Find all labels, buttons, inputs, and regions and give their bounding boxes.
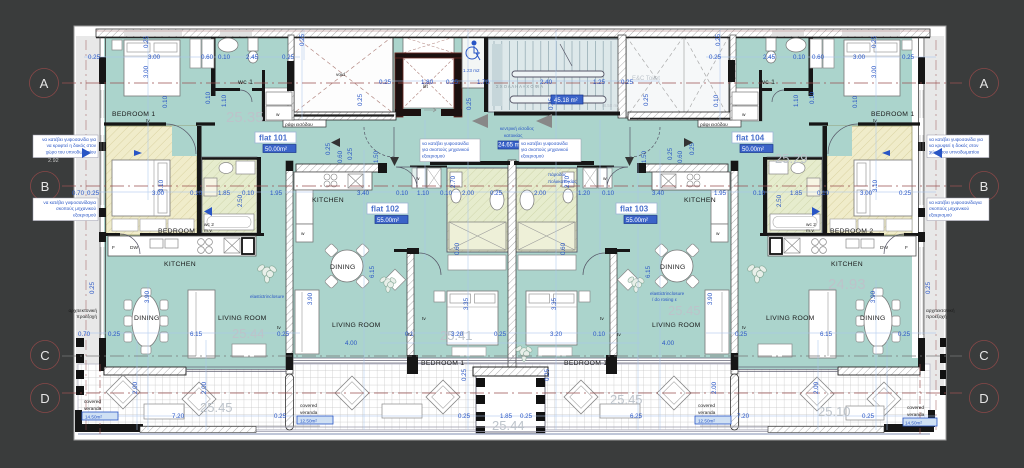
svg-text:DINING: DINING xyxy=(660,264,686,271)
svg-text:w: w xyxy=(603,177,607,182)
svg-text:25.10: 25.10 xyxy=(818,404,851,419)
svg-text:1.80: 1.80 xyxy=(421,79,434,86)
svg-text:να κατέβει γυψοσανίδα για: να κατέβει γυψοσανίδα για xyxy=(929,136,983,142)
svg-text:2.50: 2.50 xyxy=(776,194,783,207)
svg-text:0.25: 0.25 xyxy=(446,79,459,86)
svg-text:3.20: 3.20 xyxy=(451,331,464,338)
svg-text:1.20: 1.20 xyxy=(578,190,591,197)
svg-text:D: D xyxy=(40,391,49,406)
svg-text:1.95: 1.95 xyxy=(270,190,283,197)
svg-text:veranda: veranda xyxy=(698,410,716,416)
svg-text:wc 2: wc 2 xyxy=(204,222,214,228)
svg-text:0.10: 0.10 xyxy=(593,331,606,338)
svg-text:0.60: 0.60 xyxy=(677,150,684,163)
svg-text:LIVING ROOM: LIVING ROOM xyxy=(766,315,815,322)
svg-text:m.v.: m.v. xyxy=(204,229,213,234)
svg-text:0.25: 0.25 xyxy=(643,93,650,106)
svg-text:25.35: 25.35 xyxy=(226,109,264,126)
svg-text:25.44: 25.44 xyxy=(492,418,525,433)
svg-text:12.50m²: 12.50m² xyxy=(698,419,715,424)
svg-text:3.90: 3.90 xyxy=(144,290,151,303)
svg-text:1.23 m2: 1.23 m2 xyxy=(463,68,480,73)
svg-text:0.25: 0.25 xyxy=(709,54,722,61)
svg-text:tv: tv xyxy=(873,118,877,124)
svg-text:0.60: 0.60 xyxy=(812,54,825,61)
svg-text:αρχιτεκτονική: αρχιτεκτονική xyxy=(68,307,97,314)
svg-text:/ do rosing ε: / do rosing ε xyxy=(652,297,677,302)
svg-text:3.10: 3.10 xyxy=(158,179,165,192)
svg-text:0.25: 0.25 xyxy=(325,142,332,155)
svg-text:να κατέβει γυψοσανίδα: να κατέβει γυψοσανίδα xyxy=(521,140,568,146)
svg-text:F: F xyxy=(905,245,908,251)
svg-text:3.35: 3.35 xyxy=(551,297,558,310)
svg-text:C: C xyxy=(40,348,49,363)
svg-text:w: w xyxy=(742,113,746,118)
svg-text:6.15: 6.15 xyxy=(369,265,376,278)
svg-text:0.60: 0.60 xyxy=(560,242,567,255)
svg-text:0.25: 0.25 xyxy=(871,35,878,48)
svg-text:2.00: 2.00 xyxy=(132,381,139,394)
svg-text:0.25: 0.25 xyxy=(461,368,468,381)
svg-text:σκοπούς μηχανικού: σκοπούς μηχανικού xyxy=(56,205,96,211)
svg-text:B: B xyxy=(41,179,50,194)
svg-text:0.25: 0.25 xyxy=(862,413,875,420)
svg-text:προεξοχή: προεξοχή xyxy=(76,313,97,320)
svg-text:1.50: 1.50 xyxy=(641,150,648,163)
svg-text:wc 1: wc 1 xyxy=(759,79,775,86)
svg-text:1.95: 1.95 xyxy=(714,190,727,197)
svg-text:w: w xyxy=(276,113,280,118)
svg-text:covered: covered xyxy=(84,399,101,405)
svg-text:24.65 m²: 24.65 m² xyxy=(498,143,522,149)
svg-text:3.90: 3.90 xyxy=(707,292,714,305)
svg-text:0.25: 0.25 xyxy=(299,33,306,46)
svg-text:7.20: 7.20 xyxy=(737,413,750,420)
svg-text:w: w xyxy=(301,232,305,237)
svg-text:0.25: 0.25 xyxy=(108,331,121,338)
svg-text:0.25: 0.25 xyxy=(87,190,100,197)
svg-text:BEDROOM 1: BEDROOM 1 xyxy=(871,111,915,118)
svg-text:για σκοπούς μηχανικού: για σκοπούς μηχανικού xyxy=(521,146,569,152)
svg-text:25.29: 25.29 xyxy=(775,151,808,166)
svg-text:0.10: 0.10 xyxy=(218,54,231,61)
svg-text:2.70: 2.70 xyxy=(450,175,457,188)
svg-text:covered: covered xyxy=(907,405,924,411)
svg-text:E&C Toilet: E&C Toilet xyxy=(632,76,660,82)
svg-text:(8.58 m): (8.58 m) xyxy=(602,103,619,108)
svg-text:0.25: 0.25 xyxy=(735,331,748,338)
svg-text:0.25: 0.25 xyxy=(667,147,674,160)
svg-text:0.10: 0.10 xyxy=(713,94,720,107)
svg-text:covered: covered xyxy=(300,403,317,409)
svg-text:0.70: 0.70 xyxy=(72,190,85,197)
svg-text:0.25: 0.25 xyxy=(88,54,101,61)
svg-text:0.25: 0.25 xyxy=(379,79,392,86)
svg-text:0.25: 0.25 xyxy=(925,281,932,294)
svg-text:εξαερισμού: εξαερισμού xyxy=(929,211,952,218)
svg-text:6.15: 6.15 xyxy=(645,265,652,278)
svg-text:0.25: 0.25 xyxy=(282,54,295,61)
svg-text:50.00m²: 50.00m² xyxy=(742,147,764,153)
svg-text:A: A xyxy=(980,76,989,91)
svg-text:w: w xyxy=(716,232,720,237)
svg-text:55.00m²: 55.00m² xyxy=(377,218,399,224)
svg-text:3.20: 3.20 xyxy=(550,331,563,338)
svg-text:wc 1: wc 1 xyxy=(237,79,253,86)
svg-text:0.25: 0.25 xyxy=(899,190,912,197)
svg-text:1.85: 1.85 xyxy=(218,190,231,197)
svg-text:BEDROOM 1: BEDROOM 1 xyxy=(421,360,465,367)
svg-text:6.15: 6.15 xyxy=(190,331,203,338)
svg-text:tv: tv xyxy=(408,332,412,338)
svg-text:εξαερισμού: εξαερισμού xyxy=(422,152,445,159)
svg-text:να κρυφτεί η δοκός στον: να κρυφτεί η δοκός στον xyxy=(47,142,97,148)
svg-text:veranda: veranda xyxy=(907,412,925,418)
svg-text:3.90: 3.90 xyxy=(870,290,877,303)
svg-text:0.25: 0.25 xyxy=(277,331,290,338)
svg-text:να κατέβει γυψοσανίδα για: να κατέβει γυψοσανίδα για xyxy=(42,136,96,142)
svg-text:0.10: 0.10 xyxy=(809,91,816,104)
svg-text:0.25: 0.25 xyxy=(490,190,503,197)
svg-text:25.45: 25.45 xyxy=(668,303,701,318)
svg-text:6.25: 6.25 xyxy=(630,413,643,420)
svg-text:0.60: 0.60 xyxy=(454,242,461,255)
svg-text:LIVING ROOM: LIVING ROOM xyxy=(652,322,701,329)
svg-text:flat 101: flat 101 xyxy=(259,134,288,143)
svg-text:25.44: 25.44 xyxy=(232,326,265,341)
svg-text:3.35: 3.35 xyxy=(463,297,470,310)
svg-text:Σ Χ Ο Α Λ Η Α × Χ Ο ΦΙ Α: Σ Χ Ο Α Λ Η Α × Χ Ο ΦΙ Α xyxy=(496,84,543,89)
svg-text:3.10: 3.10 xyxy=(872,179,879,192)
svg-text:1.25: 1.25 xyxy=(593,79,606,86)
svg-text:να κατέβει γυψοσανίδαγια: να κατέβει γυψοσανίδαγια xyxy=(929,199,982,205)
svg-text:DINING: DINING xyxy=(860,315,886,322)
svg-text:0.60: 0.60 xyxy=(337,150,344,163)
svg-text:2.00: 2.00 xyxy=(711,381,718,394)
svg-text:να κατέβει γυψοσανίδαγια: να κατέβει γυψοσανίδαγια xyxy=(43,199,96,205)
svg-text:BEDROOM 2: BEDROOM 2 xyxy=(158,228,202,235)
svg-text:3.00: 3.00 xyxy=(853,54,866,61)
svg-text:0.25: 0.25 xyxy=(494,331,507,338)
svg-text:6.15: 6.15 xyxy=(820,331,833,338)
svg-text:2.40: 2.40 xyxy=(540,79,553,86)
svg-text:1.50: 1.50 xyxy=(373,150,380,163)
svg-text:να κατέβει γυψοσανίδα: να κατέβει γυψοσανίδα xyxy=(422,140,469,146)
svg-text:12.50m²: 12.50m² xyxy=(300,419,317,424)
svg-text:25.45: 25.45 xyxy=(200,400,233,415)
svg-text:14.50m²: 14.50m² xyxy=(905,421,922,426)
svg-text:εξαερισμού: εξαερισμού xyxy=(73,211,96,218)
svg-text:25.45: 25.45 xyxy=(610,392,643,407)
svg-text:2.50: 2.50 xyxy=(237,194,244,207)
svg-text:DW: DW xyxy=(130,245,138,251)
svg-text:3.00: 3.00 xyxy=(148,54,161,61)
svg-text:0.10: 0.10 xyxy=(753,190,766,197)
svg-text:tv: tv xyxy=(422,316,426,322)
svg-text:flat 103: flat 103 xyxy=(620,205,649,214)
svg-text:1.10: 1.10 xyxy=(793,94,800,107)
svg-text:LIVING ROOM: LIVING ROOM xyxy=(332,322,381,329)
svg-text:2.00: 2.00 xyxy=(201,381,208,394)
svg-text:0.25: 0.25 xyxy=(621,79,634,86)
svg-text:24.93: 24.93 xyxy=(828,276,866,293)
svg-text:2.45: 2.45 xyxy=(763,54,776,61)
svg-text:C: C xyxy=(979,348,988,363)
svg-text:tv: tv xyxy=(146,118,150,124)
svg-text:ράφι εισόδου: ράφι εισόδου xyxy=(700,121,728,128)
svg-text:0.10: 0.10 xyxy=(793,54,806,61)
svg-text:elastictrinclosure: elastictrinclosure xyxy=(250,294,285,299)
svg-text:ράφι εισόδου: ράφι εισόδου xyxy=(285,121,313,128)
svg-text:3.00: 3.00 xyxy=(860,190,873,197)
svg-text:2.00: 2.00 xyxy=(462,190,475,197)
svg-text:1.85: 1.85 xyxy=(790,190,803,197)
svg-text:14.50m²: 14.50m² xyxy=(85,415,102,420)
svg-text:0.25: 0.25 xyxy=(274,413,287,420)
svg-text:DINING: DINING xyxy=(330,264,356,271)
svg-text:0.25: 0.25 xyxy=(902,54,915,61)
svg-text:tv: tv xyxy=(617,332,621,338)
svg-text:veranda: veranda xyxy=(300,410,318,416)
svg-text:flat 104: flat 104 xyxy=(736,134,765,143)
svg-text:0.10: 0.10 xyxy=(817,190,830,197)
svg-text:2.92: 2.92 xyxy=(48,158,59,164)
svg-text:3.00: 3.00 xyxy=(143,65,150,78)
svg-text:LIVING ROOM: LIVING ROOM xyxy=(218,315,267,322)
svg-text:2.45: 2.45 xyxy=(246,54,259,61)
svg-text:B: B xyxy=(980,179,989,194)
svg-text:0.25: 0.25 xyxy=(548,97,555,110)
svg-text:1.10: 1.10 xyxy=(221,94,228,107)
svg-text:0.25: 0.25 xyxy=(466,97,473,110)
svg-text:2.00: 2.00 xyxy=(813,381,820,394)
svg-text:4.00: 4.00 xyxy=(662,340,675,347)
svg-text:0.70: 0.70 xyxy=(78,331,91,338)
svg-text:0.25: 0.25 xyxy=(520,413,533,420)
svg-text:0.25: 0.25 xyxy=(544,368,551,381)
svg-text:tv: tv xyxy=(742,325,746,331)
svg-text:0.10: 0.10 xyxy=(396,190,409,197)
svg-text:0.10: 0.10 xyxy=(190,190,203,197)
svg-text:55.00m²: 55.00m² xyxy=(626,218,648,224)
svg-text:D: D xyxy=(979,391,988,406)
svg-text:50.00m²: 50.00m² xyxy=(265,147,287,153)
svg-text:0.10: 0.10 xyxy=(162,95,169,108)
svg-text:void: void xyxy=(336,72,345,78)
svg-text:0.10: 0.10 xyxy=(852,95,859,108)
svg-text:0.25: 0.25 xyxy=(347,147,354,160)
svg-text:0.10: 0.10 xyxy=(440,190,453,197)
svg-text:0.25: 0.25 xyxy=(898,331,911,338)
svg-text:0.25: 0.25 xyxy=(715,33,722,46)
svg-text:3.90: 3.90 xyxy=(307,292,314,305)
svg-text:flat 102: flat 102 xyxy=(371,205,400,214)
svg-text:αρχιτεκτονική: αρχιτεκτονική xyxy=(926,307,955,314)
svg-text:wc 2: wc 2 xyxy=(806,222,816,228)
svg-text:tv: tv xyxy=(277,325,281,331)
svg-text:F: F xyxy=(112,245,115,251)
svg-text:BEDROOM 1: BEDROOM 1 xyxy=(564,360,608,367)
svg-text:0.25: 0.25 xyxy=(143,35,150,48)
svg-text:1.10: 1.10 xyxy=(417,190,430,197)
svg-text:για σκοπούς μηχανικού: για σκοπούς μηχανικού xyxy=(422,146,470,152)
svg-text:0.25: 0.25 xyxy=(357,93,364,106)
svg-text:2.00: 2.00 xyxy=(534,190,547,197)
svg-text:m.v.: m.v. xyxy=(806,229,815,234)
svg-text:KITCHEN: KITCHEN xyxy=(831,261,863,268)
svg-text:προεξοχή: προεξοχή xyxy=(926,313,947,320)
svg-text:1.85: 1.85 xyxy=(500,413,513,420)
svg-text:0.10: 0.10 xyxy=(205,91,212,104)
svg-text:BEDROOM 1: BEDROOM 1 xyxy=(112,111,156,118)
svg-text:0.25: 0.25 xyxy=(89,281,96,294)
svg-text:3.40: 3.40 xyxy=(652,190,665,197)
svg-text:4.00: 4.00 xyxy=(345,340,358,347)
svg-text:1.70: 1.70 xyxy=(477,79,490,86)
svg-text:elastictrinclosure: elastictrinclosure xyxy=(650,291,685,296)
svg-text:0.25: 0.25 xyxy=(689,142,696,155)
svg-text:κεντρική είσοδος: κεντρική είσοδος xyxy=(500,125,535,131)
svg-text:σκοπούς μηχανικού: σκοπούς μηχανικού xyxy=(929,205,969,211)
svg-text:0.25: 0.25 xyxy=(458,413,471,420)
svg-text:DINING: DINING xyxy=(134,315,160,322)
svg-text:7.20: 7.20 xyxy=(172,413,185,420)
svg-text:κατοικίας: κατοικίας xyxy=(504,133,523,138)
svg-text:BEDROOM 2: BEDROOM 2 xyxy=(830,228,874,235)
svg-text:covered: covered xyxy=(698,403,715,409)
svg-text:KITCHEN: KITCHEN xyxy=(312,197,344,204)
svg-text:2.70: 2.70 xyxy=(564,175,571,188)
svg-text:KITCHEN: KITCHEN xyxy=(164,261,196,268)
svg-text:να κρυφτεί η δοκός στον: να κρυφτεί η δοκός στον xyxy=(929,142,979,148)
svg-text:3.40: 3.40 xyxy=(357,190,370,197)
svg-text:veranda: veranda xyxy=(84,406,102,412)
svg-text:0.60: 0.60 xyxy=(201,54,214,61)
svg-text:45.18 m²: 45.18 m² xyxy=(554,98,578,104)
svg-text:εξαερισμού: εξαερισμού xyxy=(521,152,544,159)
svg-text:3.00: 3.00 xyxy=(871,65,878,78)
svg-text:A: A xyxy=(40,76,49,91)
svg-text:KITCHEN: KITCHEN xyxy=(684,197,716,204)
svg-text:tv: tv xyxy=(600,316,604,322)
svg-text:0.10: 0.10 xyxy=(602,190,615,197)
svg-text:πολυκατοικίας: πολυκατοικίας xyxy=(548,179,577,184)
